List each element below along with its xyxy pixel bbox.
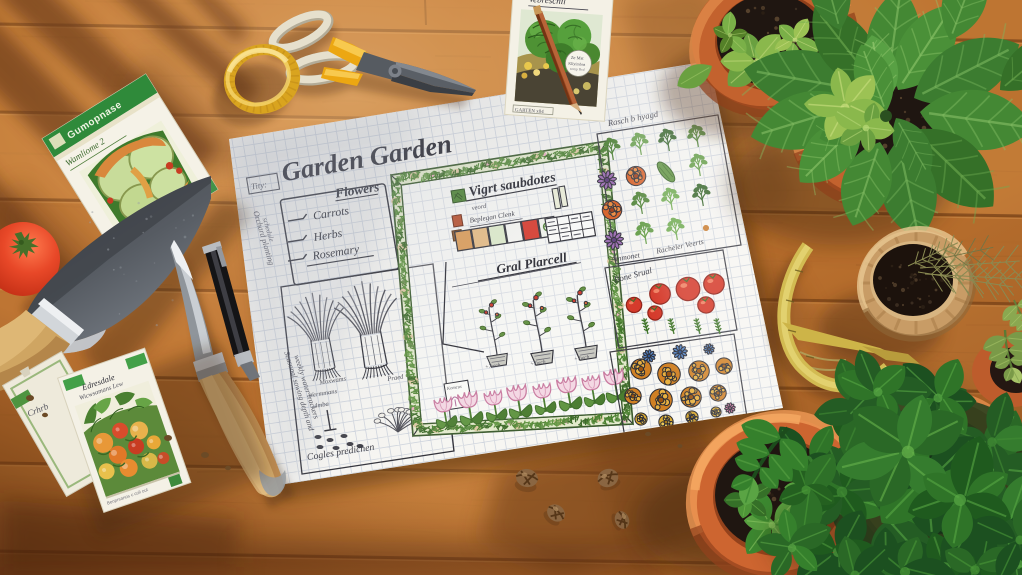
- svg-text:Ze Mst: Ze Mst: [571, 55, 585, 61]
